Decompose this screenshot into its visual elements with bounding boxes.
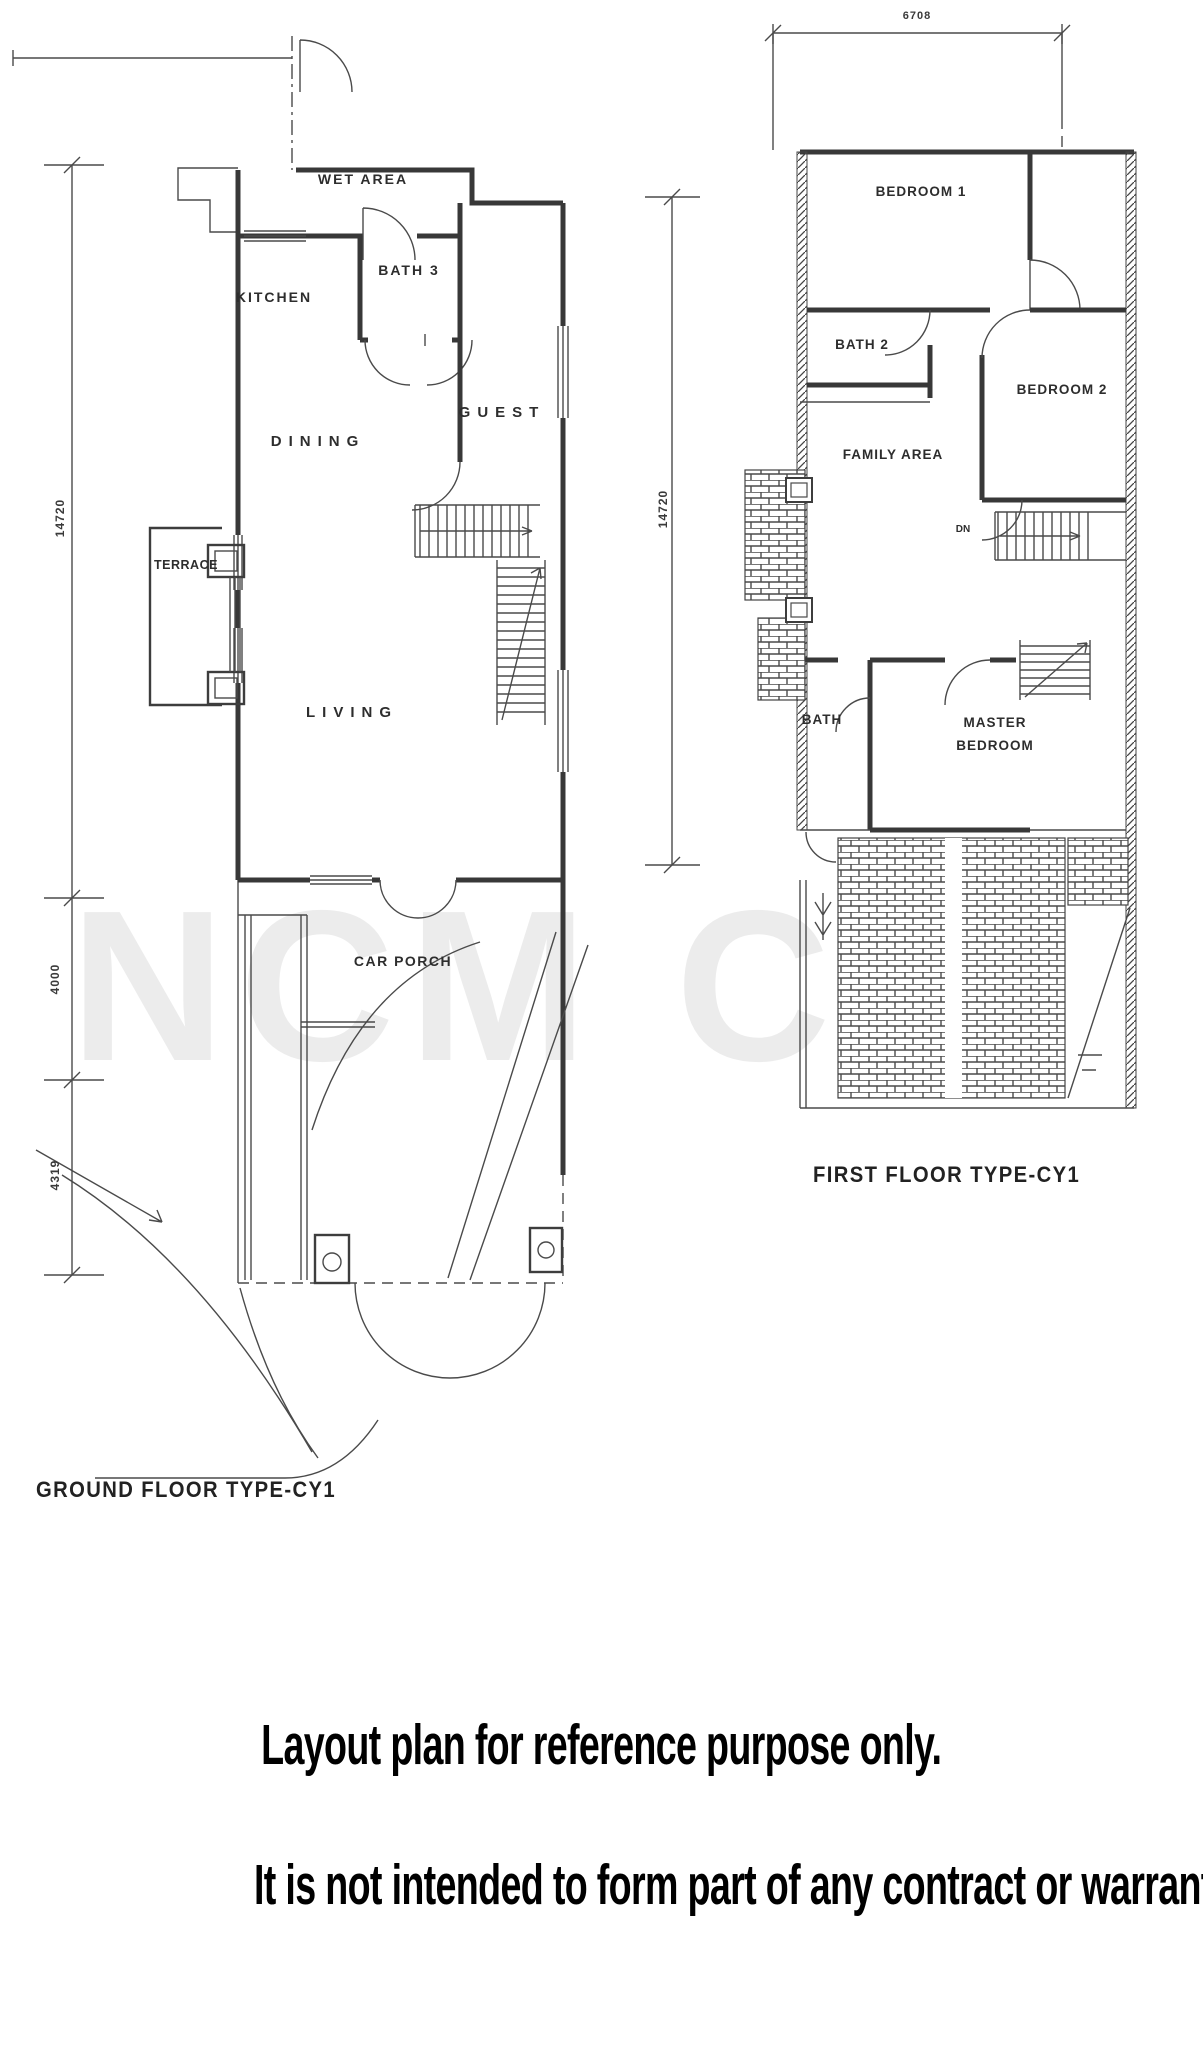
room-label-family-area: FAMILY AREA — [813, 447, 973, 462]
room-label-master-bedroom: MASTER BEDROOM — [915, 711, 1075, 757]
room-label-dining: DINING — [238, 433, 398, 450]
dimension-ground-4000: 4000 — [48, 944, 62, 1014]
dimension-ground-4319: 4319 — [48, 1140, 62, 1210]
room-label-bedroom1: BEDROOM 1 — [841, 184, 1001, 199]
floorplan-page: NCM Co — [0, 0, 1203, 2048]
master-bedroom-line1: MASTER — [915, 711, 1075, 734]
disclaimer-line2-text: It is not intended to form part of any c… — [254, 1852, 1203, 1918]
dimension-ground-14720: 14720 — [53, 483, 67, 553]
room-label-guest: GUEST — [422, 404, 582, 421]
disclaimer-line2: It is not intended to form part of any c… — [0, 1852, 1203, 1918]
room-label-car-porch: CAR PORCH — [323, 953, 483, 969]
dimension-first-14720: 14720 — [656, 474, 670, 544]
room-label-bath2: BATH 2 — [792, 337, 932, 352]
ground-floor-caption: GROUND FLOOR TYPE-CY1 — [36, 1477, 336, 1503]
ground-floor-lines — [13, 36, 588, 1478]
room-label-bath3: BATH 3 — [339, 262, 479, 278]
stairs-down-label: DN — [948, 524, 978, 535]
room-label-bedroom2: BEDROOM 2 — [982, 382, 1142, 397]
dimension-first-6708: 6708 — [877, 10, 957, 22]
master-bedroom-line2: BEDROOM — [915, 734, 1075, 757]
first-floor-caption: FIRST FLOOR TYPE-CY1 — [813, 1162, 1080, 1188]
room-label-wet-area: WET AREA — [283, 171, 443, 187]
room-label-bath: BATH — [782, 712, 862, 727]
room-label-kitchen: KITCHEN — [204, 289, 344, 305]
disclaimer-line1: Layout plan for reference purpose only. — [0, 1712, 1203, 1778]
disclaimer-line1-text: Layout plan for reference purpose only. — [261, 1712, 941, 1778]
room-label-terrace: TERRACE — [136, 558, 236, 572]
room-label-living: LIVING — [272, 704, 432, 721]
